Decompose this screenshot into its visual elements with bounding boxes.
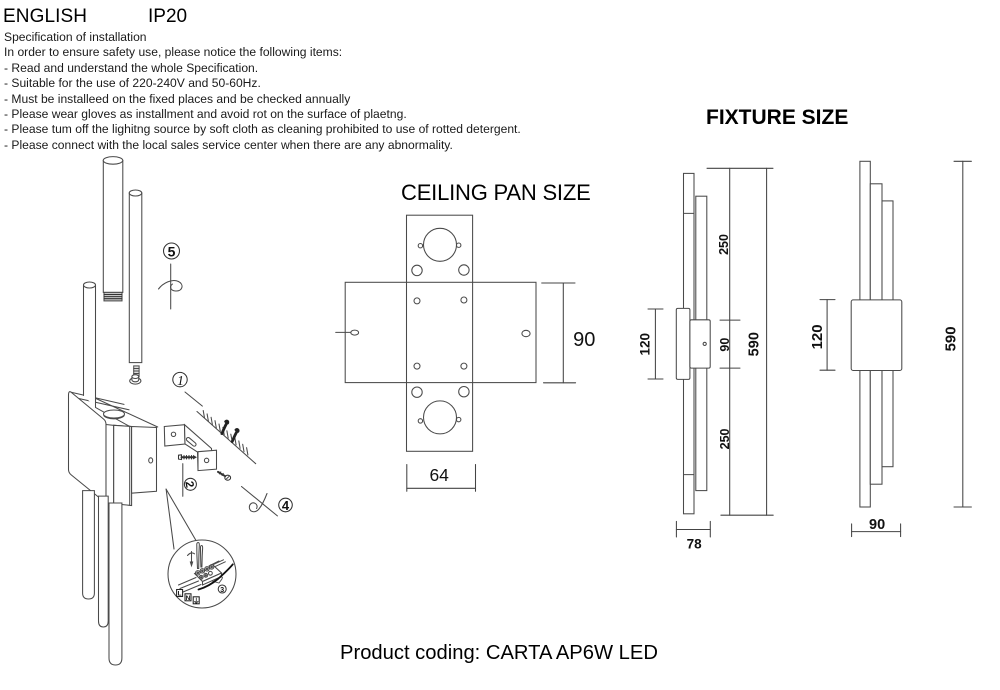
svg-text:4: 4 (282, 498, 290, 513)
svg-text:590: 590 (746, 332, 762, 356)
svg-text:N: N (186, 595, 191, 602)
svg-text:90: 90 (869, 517, 885, 533)
svg-text:250: 250 (717, 234, 731, 255)
svg-text:590: 590 (943, 326, 960, 351)
svg-text:90: 90 (573, 329, 595, 351)
svg-text:64: 64 (429, 465, 449, 485)
svg-text:2: 2 (182, 480, 195, 488)
svg-text:5: 5 (168, 243, 176, 259)
svg-text:1: 1 (177, 373, 184, 388)
svg-text:⏚: ⏚ (193, 597, 200, 605)
svg-text:250: 250 (718, 428, 732, 449)
svg-text:78: 78 (687, 537, 703, 552)
svg-text:90: 90 (718, 338, 732, 352)
svg-text:3: 3 (220, 587, 224, 594)
svg-text:120: 120 (638, 333, 653, 356)
svg-text:120: 120 (809, 324, 826, 349)
svg-text:L: L (178, 591, 182, 598)
